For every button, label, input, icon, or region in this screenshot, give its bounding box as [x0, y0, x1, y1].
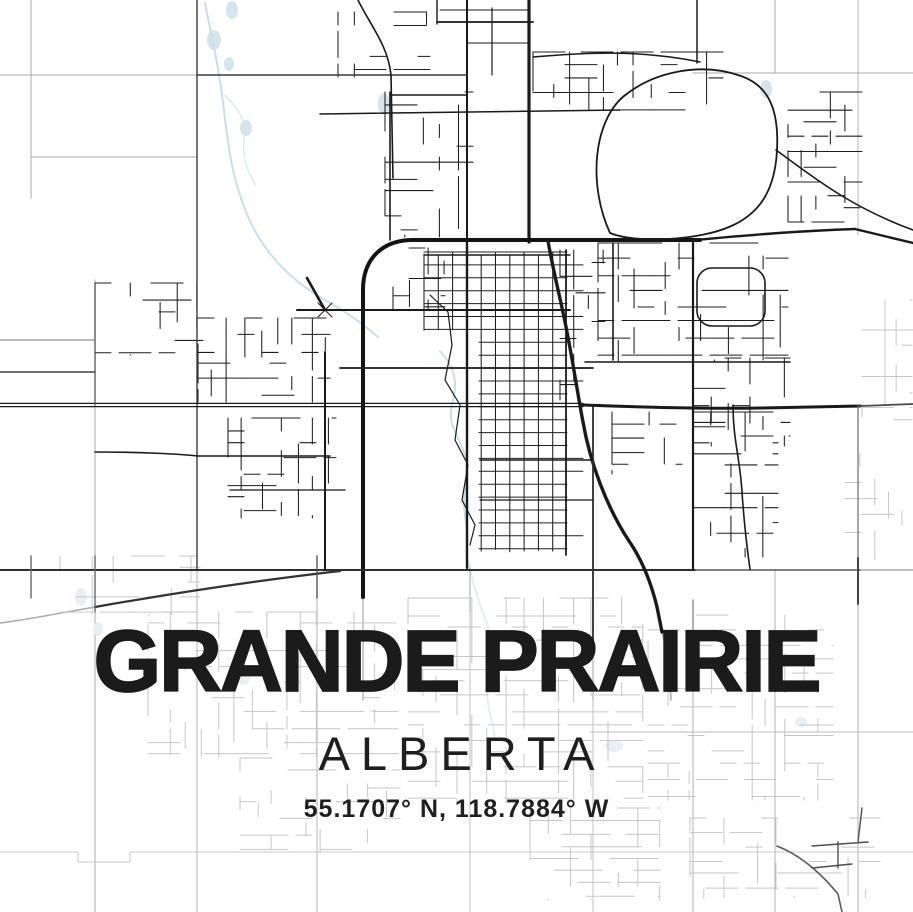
pond: [224, 57, 234, 71]
bear-creek-north: [205, 3, 378, 337]
crystal-lake: [633, 110, 765, 222]
pond: [378, 93, 390, 115]
residential-city-layer: [95, 12, 862, 557]
lake-tail: [690, 216, 706, 233]
bottom-left-lake: [2, 666, 140, 852]
map-poster: GRANDE PRAIRIE ALBERTA 55.1707° N, 118.7…: [0, 0, 913, 912]
bear-creek-faded: [470, 568, 495, 740]
city-map-canvas: [0, 0, 913, 912]
pond: [226, 1, 238, 19]
pond-faded: [93, 622, 103, 636]
pond: [240, 120, 252, 136]
reservoir: [378, 330, 440, 352]
east-pond: [733, 369, 771, 395]
